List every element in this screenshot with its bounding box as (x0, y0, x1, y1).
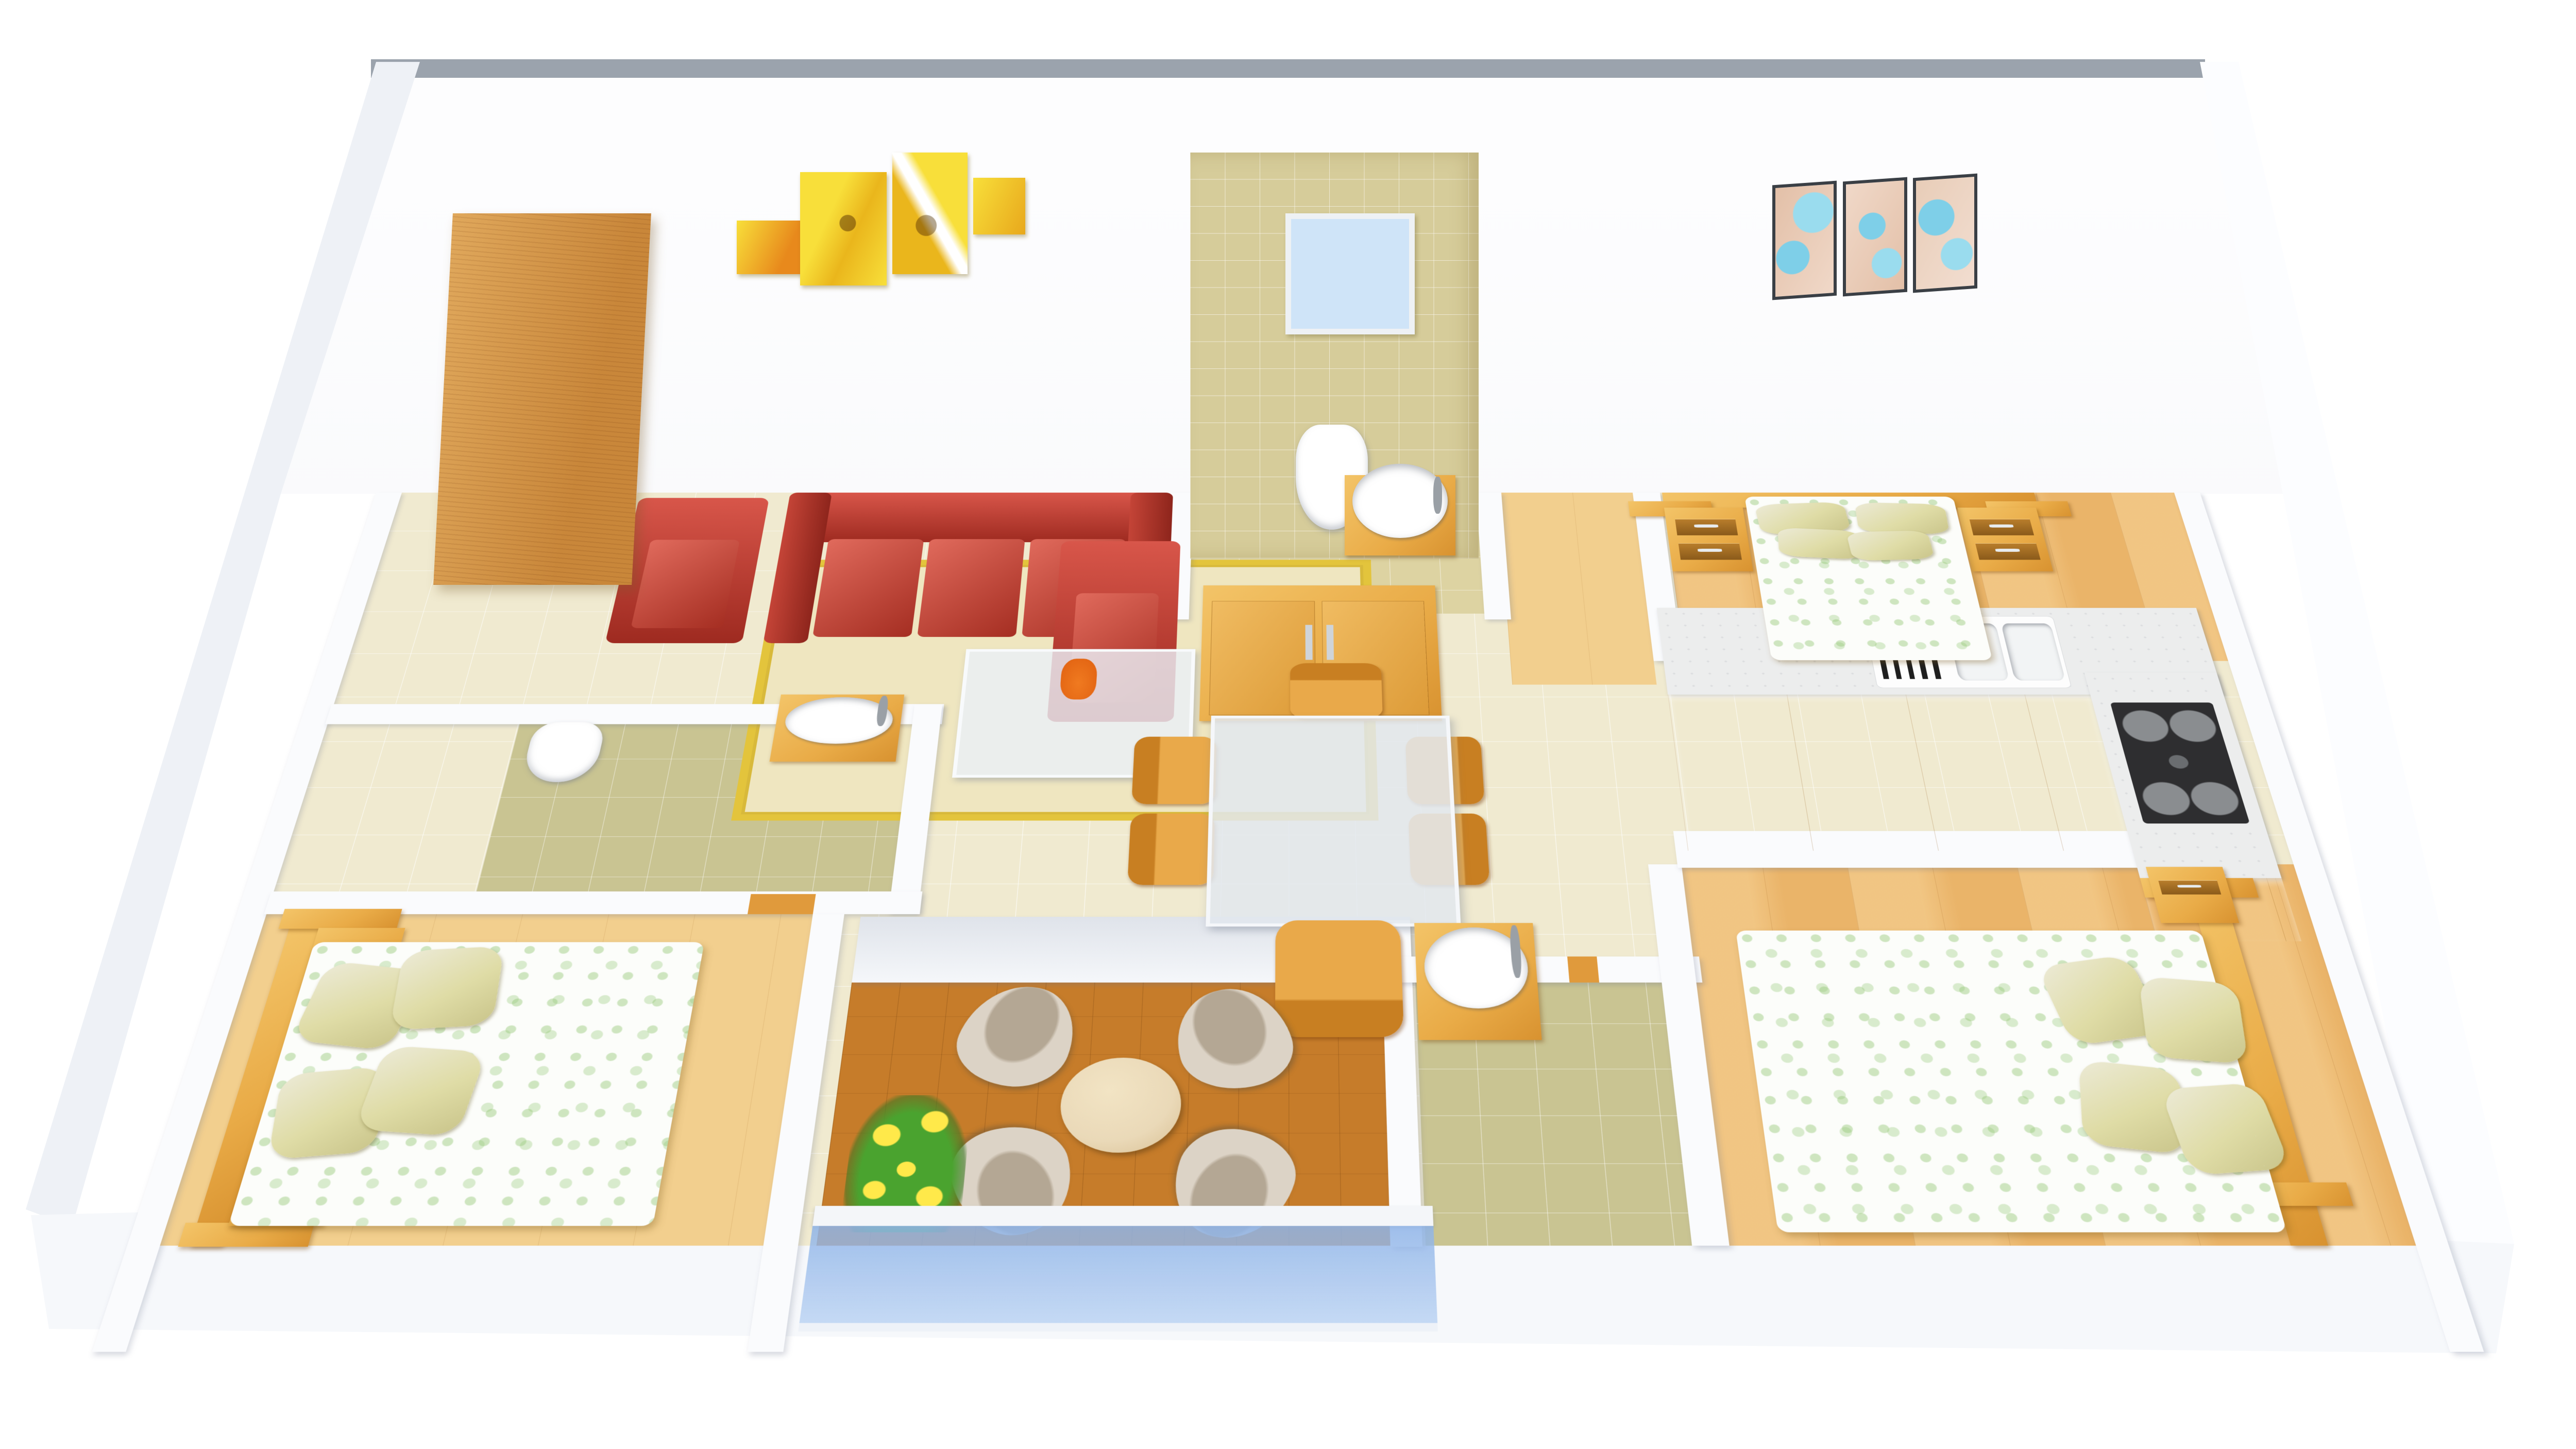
dining-chair-left (1128, 814, 1215, 885)
nightstand-drawer (1970, 519, 2034, 535)
art-panel (1843, 177, 1907, 297)
corridor-floor (1498, 493, 1657, 685)
floor-plan (92, 493, 2484, 1352)
kitchen-cabinets-front (1668, 694, 2133, 851)
door-threshold (1567, 956, 1600, 983)
dining-chair-bottom (1275, 920, 1404, 1037)
balcony-glass-railing (798, 1225, 1438, 1331)
art-panel (892, 153, 968, 274)
sink-basin (2001, 624, 2065, 680)
sideboard-handle (1327, 625, 1334, 660)
art-panel (1913, 173, 1977, 293)
sofa-seat-cushion (812, 539, 924, 637)
nightstand (1664, 508, 1753, 571)
bathroom-window (1285, 213, 1415, 334)
yellow-wall-art (737, 153, 1025, 294)
armchair-seat (631, 540, 740, 628)
art-panel (737, 221, 806, 274)
faucet (1433, 477, 1442, 514)
washbasin-stand (1345, 475, 1455, 555)
art-panel (1772, 181, 1837, 300)
dining-chair-top (1290, 663, 1383, 718)
dining-table (1206, 715, 1461, 926)
vase (1059, 659, 1098, 699)
sideboard-handle (1306, 625, 1313, 660)
headboard-shelf (278, 908, 402, 929)
floor-plan-scene (0, 0, 2576, 1440)
bedroom-right-bed (1736, 931, 2287, 1232)
triptych-wall-art (1772, 176, 1973, 299)
washbasin-stand (1415, 922, 1542, 1039)
pillow (1846, 530, 1935, 561)
nightstand-drawer (2158, 880, 2221, 895)
nightstand-drawer (1975, 543, 2040, 559)
washbasin-counter (770, 694, 905, 761)
sofa-back (781, 493, 1173, 542)
nightstand-drawer (1675, 519, 1738, 535)
leaning-door-panel (433, 213, 651, 585)
back-wall-top-edge (371, 59, 2205, 78)
door-threshold (748, 894, 816, 914)
art-panel (800, 172, 887, 285)
nightstand-drawer (1679, 543, 1742, 559)
sofa-seat-cushion (917, 539, 1025, 637)
art-panel (973, 178, 1025, 234)
pillow (1854, 502, 1950, 534)
dining-table-base (1252, 749, 1414, 888)
dining-chair-left (1132, 736, 1217, 804)
balcony-railing-top-bar (812, 1206, 1433, 1225)
headboard-shelf (178, 1222, 315, 1246)
